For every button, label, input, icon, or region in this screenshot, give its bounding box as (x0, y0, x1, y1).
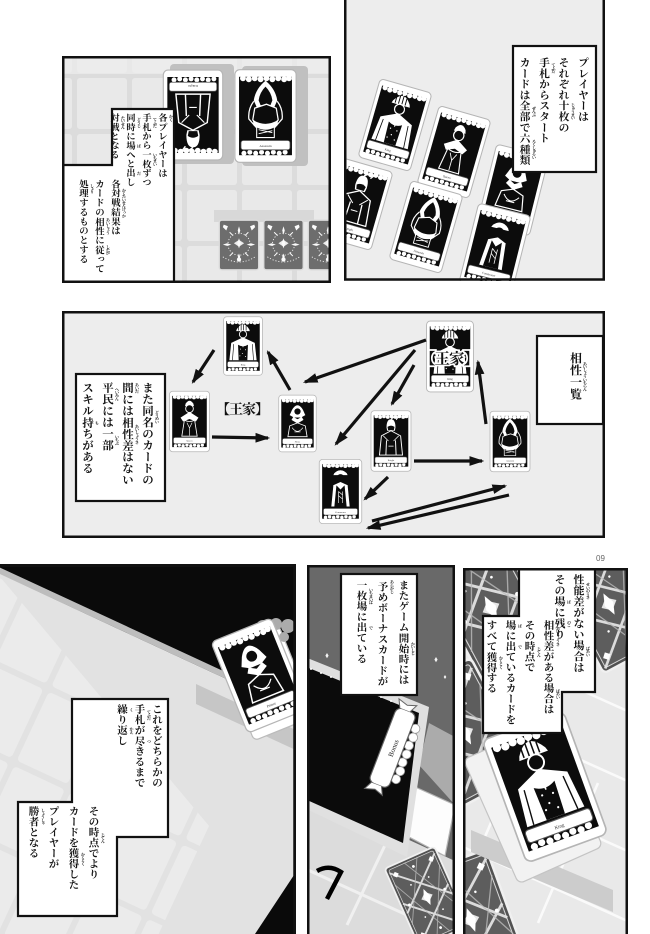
svg-text:【王家】: 【王家】 (420, 347, 478, 369)
